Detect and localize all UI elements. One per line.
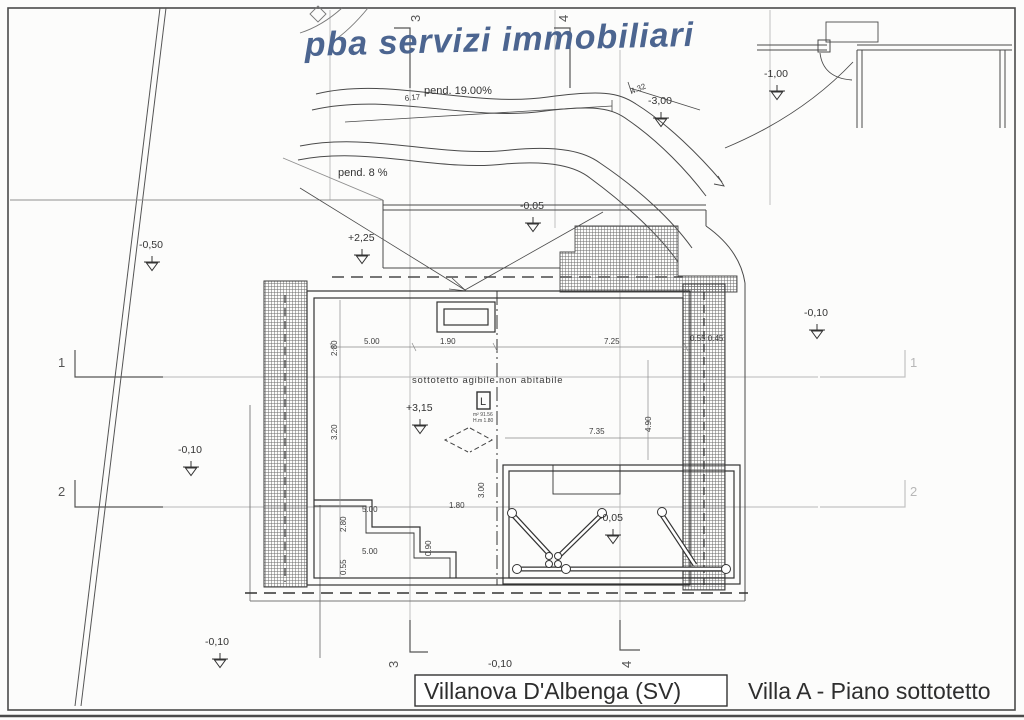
dim-left-2: 3.20 xyxy=(330,424,339,440)
room-label: sottotetto agibile non abitabile xyxy=(412,375,563,386)
dim-right-2: 4.90 xyxy=(644,416,653,432)
roof-slope-symbols xyxy=(445,428,492,452)
site-plan-drawing: pend. 19.00% 6.17 4.32 pend. 8 % xyxy=(0,0,1024,720)
level-minus-005-top: -0,05 xyxy=(520,200,544,212)
watermark-logo: pba servizi immobiliari xyxy=(303,16,695,64)
site-boundary-line xyxy=(75,8,166,706)
room-area-symbol: L m² 91.56 H.m 1.80 xyxy=(473,392,494,424)
slope-lower-label: pend. 8 % xyxy=(338,167,388,179)
hatched-wall-left xyxy=(264,281,307,587)
dim-left-3: 2.80 xyxy=(339,516,348,532)
section-3-bottom: 3 xyxy=(386,661,401,668)
dim-top-2: 1.90 xyxy=(440,337,456,346)
drawing-sheet: pend. 19.00% 6.17 4.32 pend. 8 % xyxy=(0,0,1024,720)
section-2-left: 2 xyxy=(58,484,65,499)
dim-mid-2: 3.00 xyxy=(477,482,486,498)
room-symbol-letter: L xyxy=(480,396,486,408)
dim-top-3: 7.25 xyxy=(604,337,620,346)
level-minus-010-left: -0,10 xyxy=(178,444,202,456)
entrance-gate xyxy=(725,22,1012,148)
dim-mid-4: 0.90 xyxy=(424,540,433,556)
level-plus-315: +3,15 xyxy=(406,402,433,414)
dim-bottom-1: 5.00 xyxy=(362,505,378,514)
section-2-right: 2 xyxy=(910,484,917,499)
level-minus-300: -3,00 xyxy=(648,95,672,107)
dim-left-1: 2.80 xyxy=(330,340,339,356)
section-1-left: 1 xyxy=(58,355,65,370)
level-minus-050: -0,50 xyxy=(139,239,163,251)
dim-top-1: 5.00 xyxy=(364,337,380,346)
hatched-wall-right xyxy=(683,284,725,590)
slope-upper-dim: 6.17 xyxy=(404,92,421,103)
slope-dim-b: 4.32 xyxy=(629,81,647,95)
level-minus-100: -1,00 xyxy=(764,68,788,80)
slope-upper-label: pend. 19.00% xyxy=(424,85,492,97)
level-minus-005-mid: -0,05 xyxy=(599,512,623,524)
section-4-bottom: 4 xyxy=(619,661,634,668)
page-border xyxy=(0,8,1024,716)
level-minus-010-bottom-center: -0,10 xyxy=(488,658,512,670)
level-plus-225: +2,25 xyxy=(348,232,375,244)
title-block: Villanova D'Albenga (SV) Villa A - Piano… xyxy=(415,675,991,706)
title-drawing: Villa A - Piano sottotetto xyxy=(748,678,991,704)
dim-left-4: 0.55 xyxy=(339,559,348,575)
title-location: Villanova D'Albenga (SV) xyxy=(424,678,681,704)
dim-bottom-2: 5.00 xyxy=(362,547,378,556)
terrain-lines xyxy=(10,158,383,200)
level-minus-010-right: -0,10 xyxy=(804,307,828,319)
room-height-value: H.m 1.80 xyxy=(473,418,494,424)
dim-mid-3: 1.80 xyxy=(449,501,465,510)
dim-right-1: 0.55 0.45 xyxy=(690,334,724,343)
section-1-right: 1 xyxy=(910,355,917,370)
dim-mid-1: 7.35 xyxy=(589,427,605,436)
section-3-top: 3 xyxy=(408,15,423,22)
level-minus-010-bottom-left: -0,10 xyxy=(205,636,229,648)
paved-terrace-hatch xyxy=(560,226,737,292)
